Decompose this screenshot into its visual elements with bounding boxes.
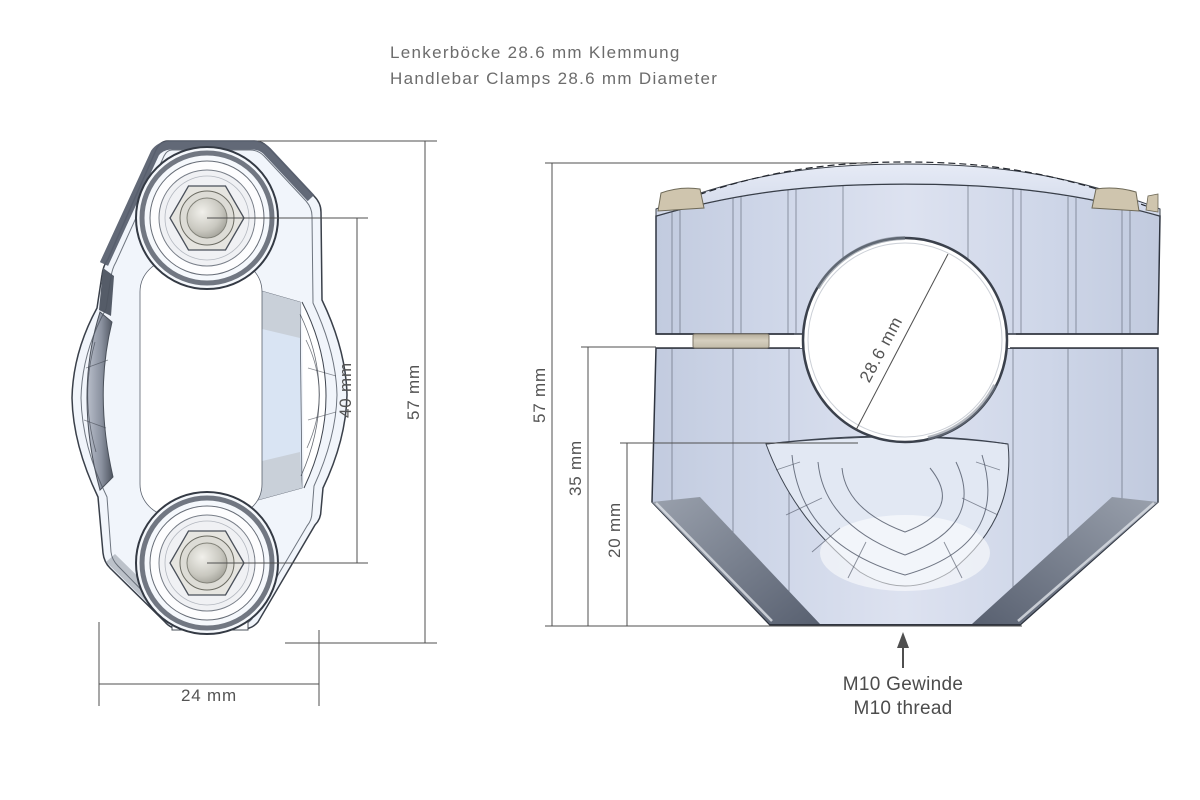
bolt-cap-right <box>1092 188 1139 211</box>
dim-label-20mm: 20 mm <box>605 502 624 558</box>
drawing-title-de: Lenkerböcke 28.6 mm Klemmung <box>390 40 718 66</box>
top-view-drawing <box>72 141 347 634</box>
bolt-cap-left <box>658 188 704 211</box>
dim-label-57mm-front-view: 57 mm <box>530 367 549 423</box>
top-view-center-face <box>140 260 262 516</box>
m10-note-en: M10 thread <box>853 698 952 719</box>
drawing-page: Lenkerböcke 28.6 mm Klemmung Handlebar C… <box>0 0 1200 800</box>
gap-spacer-washer <box>693 334 769 348</box>
technical-drawing-canvas: 40 mm 57 mm 24 mm 57 mm 35 mm 20 mm 28.6… <box>0 0 1200 800</box>
dim-label-40mm: 40 mm <box>336 362 355 418</box>
m10-note-de: M10 Gewinde <box>843 674 964 695</box>
dim-label-35mm: 35 mm <box>566 440 585 496</box>
bolt-cap-right-edge <box>1146 194 1158 212</box>
drawing-title: Lenkerböcke 28.6 mm Klemmung Handlebar C… <box>390 40 718 92</box>
dimension-35mm <box>581 347 656 626</box>
handlebar-bore <box>803 238 1007 442</box>
dim-label-24mm: 24 mm <box>181 686 237 705</box>
arrow-up-icon <box>897 632 909 668</box>
front-view-drawing <box>652 162 1160 625</box>
drawing-title-en: Handlebar Clamps 28.6 mm Diameter <box>390 66 718 92</box>
m10-annotation: M10 Gewinde M10 thread <box>843 632 964 719</box>
dim-label-57mm-top-view: 57 mm <box>404 364 423 420</box>
